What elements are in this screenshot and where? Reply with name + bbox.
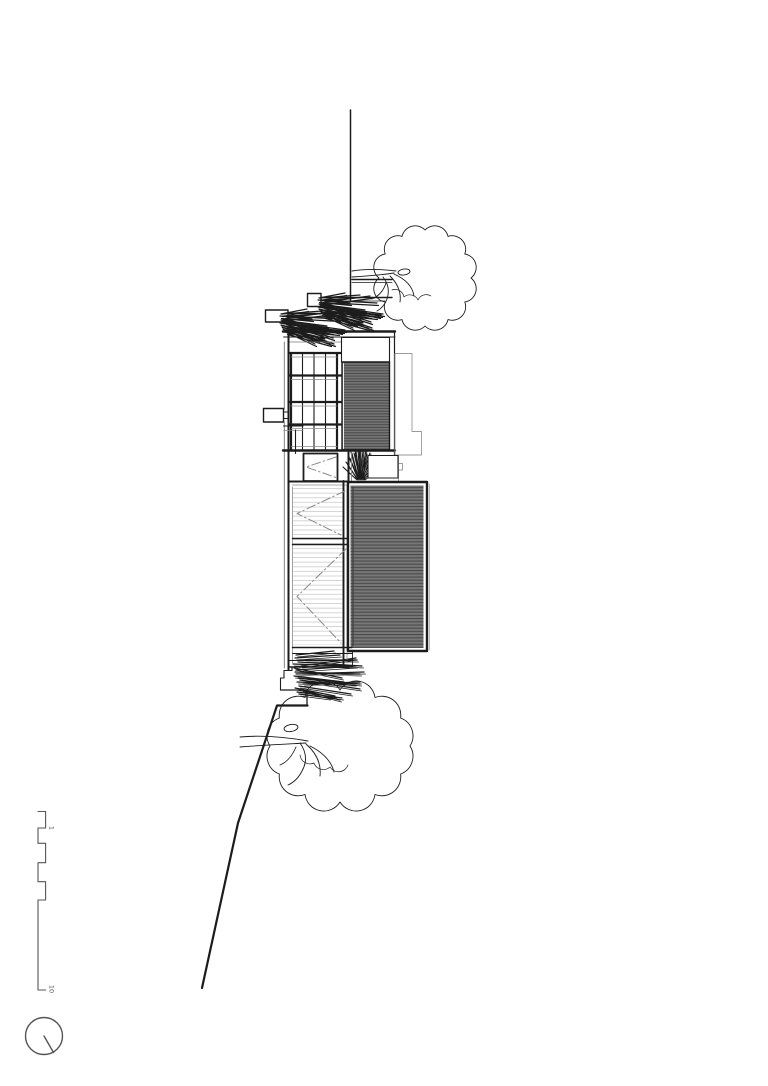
building-lower-floor [289, 481, 430, 667]
orientation-pointer [44, 1036, 54, 1053]
tree-lower [240, 681, 413, 811]
tree-upper-leaf [398, 268, 411, 276]
louver-screen-lower-slats [351, 486, 424, 649]
scale-bar-label-10: 10 [48, 985, 56, 993]
tree-lower-leaf [283, 723, 298, 732]
footing-step [281, 667, 293, 690]
canopy-beam-cap [264, 409, 284, 423]
window-frame [289, 353, 342, 450]
drawing-root: 1 10 [26, 110, 477, 1055]
clapboard-siding [293, 485, 344, 645]
ground [202, 667, 308, 988]
right-outline-shape [395, 354, 422, 456]
mid-door-swing [306, 457, 336, 478]
tree-upper-canopy [374, 226, 476, 330]
scale-bar-line [38, 812, 46, 991]
scale-bar-label-1: 1 [48, 826, 56, 830]
orientation-marker [26, 1018, 63, 1055]
tree-lower-branches [280, 743, 334, 785]
scale-bar: 1 10 [38, 812, 56, 994]
tree-lower-trunk [240, 736, 308, 747]
upper-fascia-panel [342, 338, 390, 363]
ground-slope [202, 706, 308, 989]
site-section-elevation-drawing: 1 10 [0, 0, 768, 1086]
tree-lower-inner-foliage [300, 755, 348, 772]
planter-box [368, 456, 398, 479]
louver-screen-upper-slats [342, 362, 390, 450]
mid-door-panel [304, 454, 338, 482]
louver-screen-upper [342, 362, 390, 450]
right-outline [395, 354, 422, 482]
louver-screen-lower [348, 482, 430, 651]
building [264, 331, 430, 670]
window-grid [289, 353, 342, 450]
tree-upper-inner-foliage [392, 289, 431, 300]
